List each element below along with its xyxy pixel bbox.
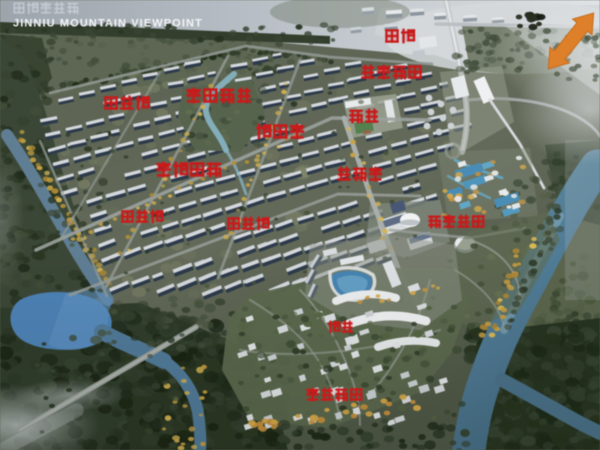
svg-text:JINNIU MOUNTAIN VIEWPOINT: JINNIU MOUNTAIN VIEWPOINT	[13, 18, 203, 30]
